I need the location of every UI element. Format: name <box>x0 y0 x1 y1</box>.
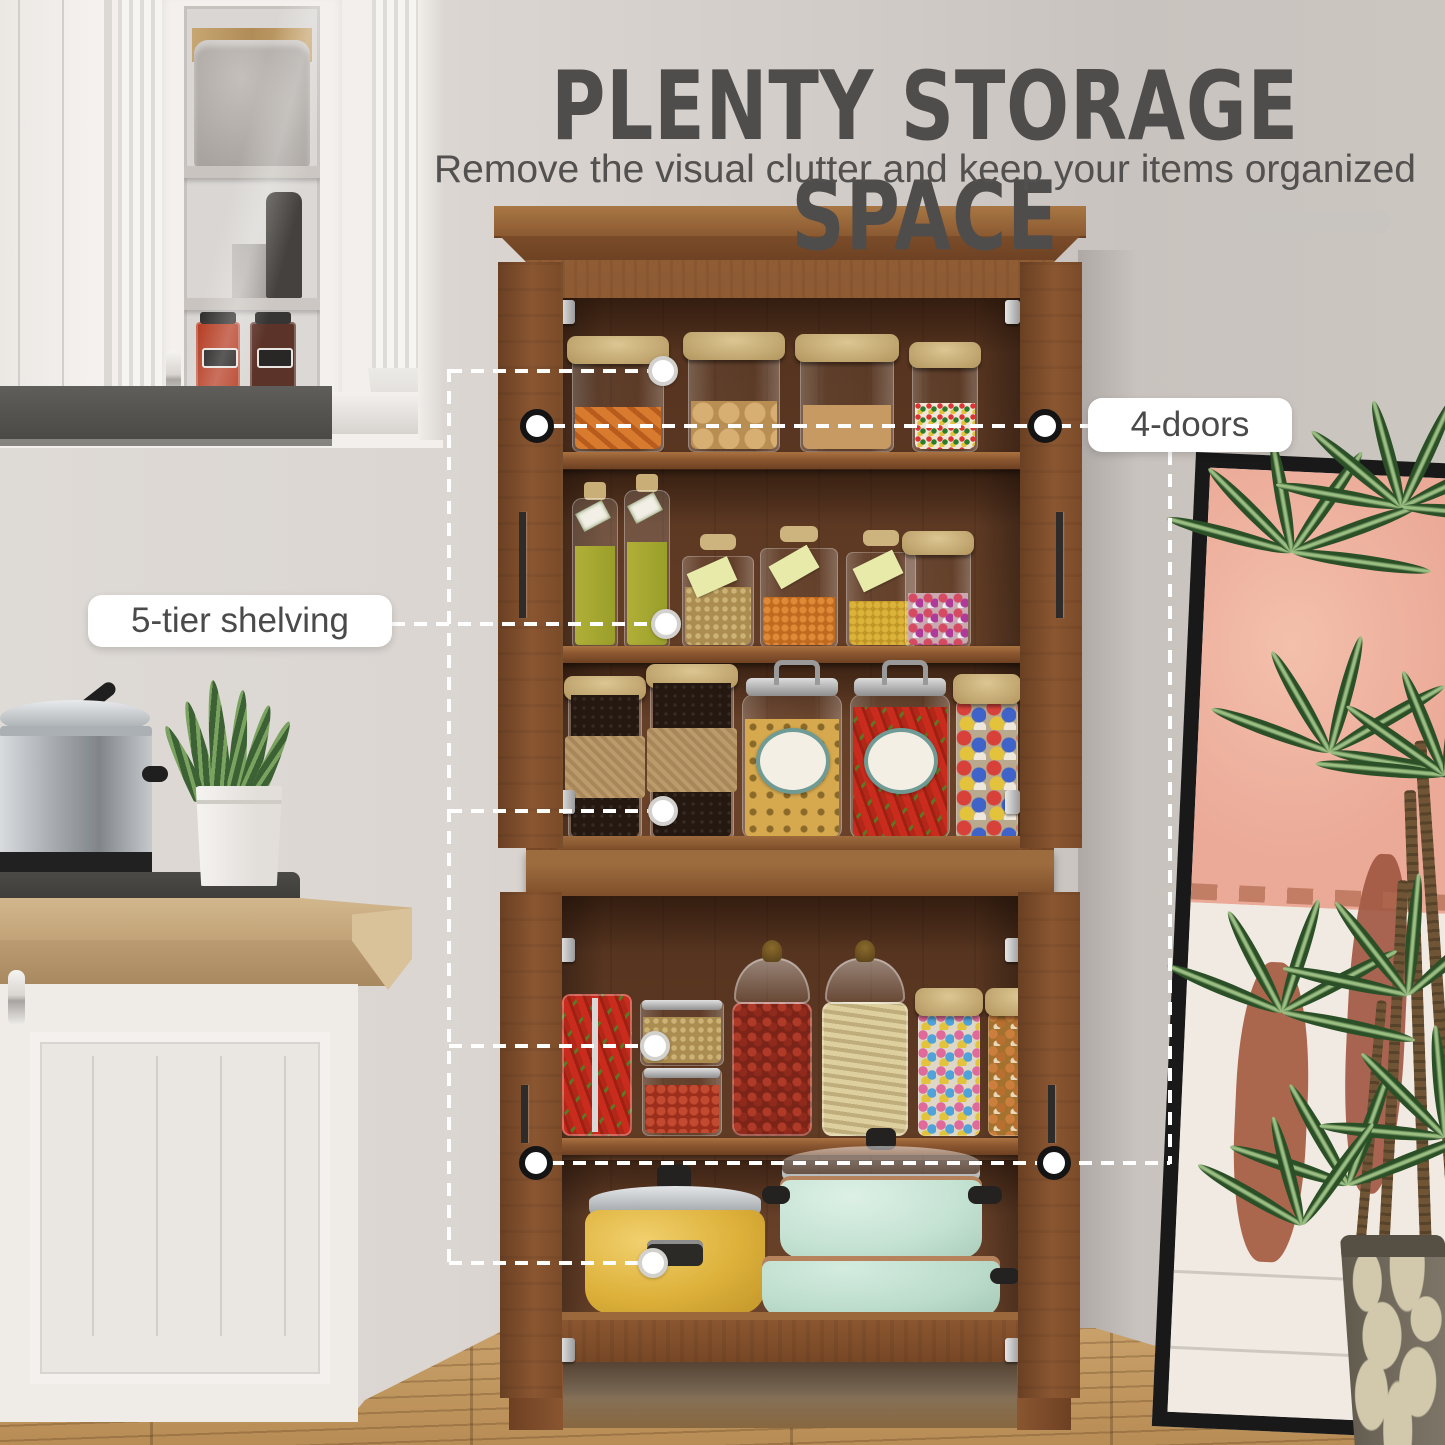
base-bottom-rail <box>526 1320 1054 1362</box>
door-marker-bottom-right <box>1037 1146 1071 1180</box>
jar-tag <box>853 550 904 593</box>
shelving-branch-4 <box>449 1044 647 1048</box>
mid-rail <box>526 850 1054 896</box>
jar-lentils <box>760 548 838 648</box>
hinge <box>1005 790 1020 814</box>
door-handle <box>1056 512 1063 618</box>
shelving-callout-text: 5-tier shelving <box>131 601 349 641</box>
doors-callout-label: 4-doors <box>1088 398 1292 452</box>
jar-penne <box>822 1002 908 1136</box>
door-marker-top-right <box>1028 409 1062 443</box>
jar-cap <box>700 534 736 550</box>
door-marker-top-left <box>520 409 554 443</box>
doors-callout-text: 4-doors <box>1131 405 1250 445</box>
shelving-branch-3 <box>449 809 655 813</box>
burlap-band <box>565 736 645 798</box>
shelving-callout-label: 5-tier shelving <box>88 595 392 647</box>
bottle-oil <box>575 546 615 645</box>
lower-pot-handle <box>990 1268 1020 1284</box>
jar-sprinkles <box>912 358 978 452</box>
page-subtitle: Remove the visual clutter and keep your … <box>420 148 1430 192</box>
tier-marker-3 <box>648 796 678 826</box>
stacked-containers <box>640 1000 724 1136</box>
shelving-branch-2 <box>392 622 658 626</box>
upper-casserole <box>780 1176 982 1258</box>
casserole-handle <box>968 1186 1002 1204</box>
jar-tag <box>768 545 819 590</box>
lid-finial <box>762 940 782 962</box>
cork-lid <box>909 342 982 368</box>
contents <box>645 1085 719 1133</box>
lower-pot <box>762 1256 1000 1318</box>
jar-chili-peppers <box>850 694 950 840</box>
steel-rim <box>644 1068 720 1078</box>
doors-line-vertical <box>1168 452 1172 1164</box>
tier-marker-4 <box>640 1031 670 1061</box>
product-scene: 5-tier shelving 4-doors PLENTY STORAGE S… <box>0 0 1445 1445</box>
tier-marker-2 <box>651 609 681 639</box>
jar-candy-balls <box>918 1012 980 1136</box>
upper-right-door <box>1020 262 1082 848</box>
cork-lid <box>915 988 983 1016</box>
burlap-band <box>647 728 737 792</box>
tier-marker-1 <box>648 356 678 386</box>
jar-contents <box>763 597 835 645</box>
jar-pink-candy <box>905 545 971 648</box>
canister-chilis <box>562 994 632 1136</box>
jar-pasta <box>742 694 842 840</box>
shelf-1 <box>558 452 1022 469</box>
door-handle <box>521 1085 528 1143</box>
cork-lid <box>953 674 1021 704</box>
jar-red-beans <box>732 1002 812 1136</box>
mint-pot-set <box>762 1128 1002 1318</box>
jar-cap <box>780 526 818 542</box>
jar-seeds <box>682 556 754 648</box>
upper-left-door <box>498 262 563 848</box>
jar-cap <box>863 530 899 546</box>
under-cabinet-gap <box>562 1362 1018 1428</box>
shelving-callout-spine <box>447 369 451 1266</box>
jar-cookies <box>688 348 780 452</box>
lid-handle <box>882 660 928 685</box>
hinge <box>560 938 575 962</box>
cork-lid <box>795 334 898 362</box>
hinge <box>1005 300 1020 324</box>
jar-label <box>864 728 938 794</box>
shelving-branch-1 <box>449 369 654 373</box>
lower-right-door <box>1018 892 1080 1398</box>
jar-contents <box>685 587 751 645</box>
container-red <box>642 1068 722 1136</box>
metal-bar <box>592 998 598 1132</box>
jar-contents <box>849 601 913 645</box>
door-handle <box>519 512 526 618</box>
jar-gumballs <box>956 700 1018 840</box>
lid-finial <box>855 940 875 962</box>
tier-marker-5 <box>638 1248 668 1278</box>
yellow-pot <box>585 1164 765 1314</box>
cork-lid <box>683 332 784 360</box>
jar-fortune-cookies <box>800 350 894 452</box>
jar-label <box>756 728 830 794</box>
doors-line-top <box>552 424 1088 428</box>
interior-shadow <box>558 896 1022 952</box>
door-marker-bottom-left <box>519 1146 553 1180</box>
lower-left-door <box>500 892 562 1398</box>
shelving-branch-5 <box>449 1261 645 1265</box>
jar-coffee-beans <box>568 690 642 840</box>
cork-lid <box>902 531 975 555</box>
door-handle <box>1048 1085 1055 1143</box>
steel-rim <box>642 1000 722 1010</box>
doors-line-bottom <box>551 1161 1170 1165</box>
lid-handle <box>774 660 820 685</box>
jar-contents <box>908 593 968 645</box>
casserole-handle <box>762 1186 790 1204</box>
hinge <box>560 1338 575 1362</box>
jar-contents <box>575 407 661 449</box>
